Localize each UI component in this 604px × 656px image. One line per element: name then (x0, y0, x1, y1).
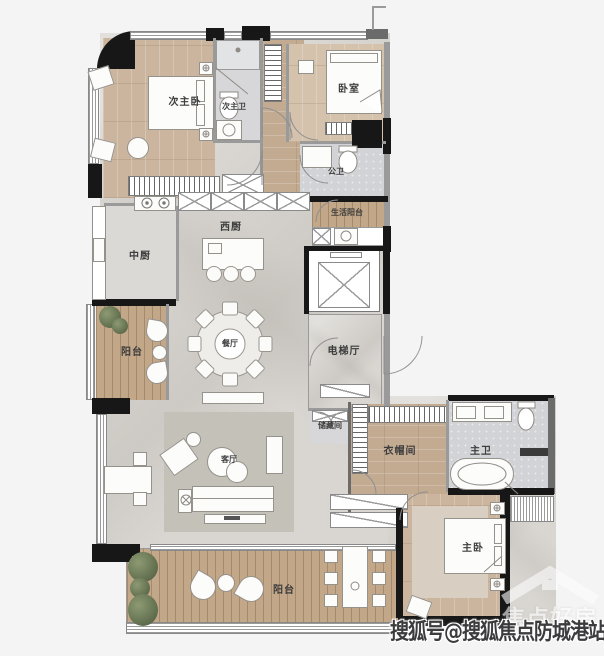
room-label-balcony-left: 阳台 (121, 348, 143, 358)
shoe-cabinet-entry (264, 44, 282, 102)
outdoor-dining-table (342, 546, 368, 608)
pillow (494, 546, 502, 566)
service-cabinet-x (312, 228, 331, 245)
sofa (192, 486, 274, 512)
outdoor-chair (324, 572, 338, 585)
nightstand (199, 62, 213, 75)
wall-left-1 (88, 164, 102, 198)
wall-elevator-right (383, 248, 390, 314)
pillow (330, 53, 378, 63)
washing-machine (334, 228, 358, 245)
outdoor-chair (324, 550, 338, 563)
wall-bedroom-left (286, 44, 289, 142)
nightstand (490, 502, 505, 515)
closet-rail-top (368, 406, 448, 423)
kitchen-cabinet-4 (277, 192, 310, 211)
room-label-living-room: 客厅 (221, 456, 237, 464)
ac-platform (510, 496, 554, 522)
pillow (494, 524, 502, 544)
vent-stack-line (372, 6, 374, 30)
sink-public-bath (302, 146, 332, 168)
railing-balcony-left (86, 304, 95, 400)
room-label-secondary-master-bath: 次主卫 (222, 103, 246, 111)
house-logo-icon (494, 566, 604, 604)
floor-plan-image: 次主卧 次主卫 卧室 公卫 生活阳台 中厨 西厨 阳台 餐厅 电梯厅 储藏间 客… (0, 0, 604, 656)
kitchen-cabinet-2 (211, 192, 244, 211)
wall-top-corner (366, 29, 388, 39)
shelf-unit (104, 466, 152, 494)
room-label-master-bedroom: 主卧 (462, 544, 484, 554)
wall-service-balcony-top (306, 196, 388, 202)
wall-elevator-left (304, 248, 309, 314)
bathtub (450, 458, 514, 490)
vent-stack-tick (372, 6, 386, 8)
nightstand (199, 128, 213, 141)
watermark-text: 搜狐号@搜狐焦点防城港站 (390, 619, 604, 647)
room-label-bedroom: 卧室 (338, 85, 360, 95)
stove (134, 196, 176, 211)
window-top-left (130, 31, 208, 40)
shower-fixture (520, 448, 548, 456)
ac-niche-bedroom (352, 120, 382, 148)
console-table (202, 392, 264, 404)
grille-bedroom (325, 122, 353, 135)
tv (224, 516, 240, 520)
wall-master-bath-right (548, 398, 555, 494)
side-table-round (152, 345, 167, 360)
wall-master-bedroom-left (396, 508, 403, 618)
sink (484, 406, 504, 419)
room-label-master-bath: 主卫 (470, 447, 492, 457)
sink (456, 406, 476, 419)
room-label-elevator-hall: 电梯厅 (328, 347, 361, 357)
sofa-seat-line (192, 498, 274, 499)
kitchen-cabinet-3 (244, 192, 277, 211)
side-table (178, 489, 192, 513)
wall-kitchen-right (176, 206, 179, 301)
outdoor-chair (372, 550, 386, 563)
elevator-door (330, 252, 362, 258)
wall-corridor-left (260, 38, 263, 196)
bench-elevator-hall (320, 384, 370, 398)
window-top-right (270, 31, 368, 40)
wall-kitchen-bottom (92, 299, 176, 306)
kitchen-cabinet-1 (178, 192, 211, 211)
room-label-chinese-kitchen: 中厨 (129, 252, 151, 262)
room-label-service-balcony: 生活阳台 (331, 209, 363, 217)
wall-master-bath-left (446, 400, 449, 492)
wall-left-2 (92, 398, 130, 414)
wall-master-bath-top (448, 395, 554, 401)
wall-top-2 (242, 26, 270, 41)
shower-secondary-bath (216, 40, 260, 70)
wall-secondary-bath-bottom (213, 140, 263, 143)
stool-round (127, 137, 149, 159)
coffee-table-small (226, 461, 248, 483)
wall-elevator-top (304, 246, 390, 251)
closet-rail-left (352, 404, 368, 474)
island-sink (208, 243, 222, 254)
elevator-car-symbol (318, 262, 370, 308)
window-top-2 (224, 31, 242, 40)
room-label-western-kitchen: 西厨 (220, 223, 242, 233)
room-label-public-bath: 公卫 (328, 168, 344, 176)
sink-secondary-bath (216, 120, 242, 140)
plant (112, 318, 128, 334)
cabinet-tall (266, 436, 283, 474)
room-label-storage: 储藏间 (318, 422, 342, 430)
outdoor-chair (324, 594, 338, 607)
room-label-walk-in-closet: 衣帽间 (384, 447, 417, 457)
plant (128, 594, 158, 626)
railing-balcony-bottom (126, 622, 406, 634)
nightstand (298, 60, 314, 74)
room-label-dining-room: 餐厅 (222, 340, 238, 348)
room-label-balcony-bottom: 阳台 (273, 586, 295, 596)
kitchen-sink (93, 238, 105, 262)
side-stool (133, 452, 147, 466)
wall-right-block-1 (383, 118, 391, 154)
outdoor-chair (372, 594, 386, 607)
room-label-secondary-master-bedroom: 次主卧 (169, 98, 202, 108)
outdoor-chair (372, 572, 386, 585)
side-table-round (217, 574, 235, 592)
side-stool (133, 492, 147, 506)
